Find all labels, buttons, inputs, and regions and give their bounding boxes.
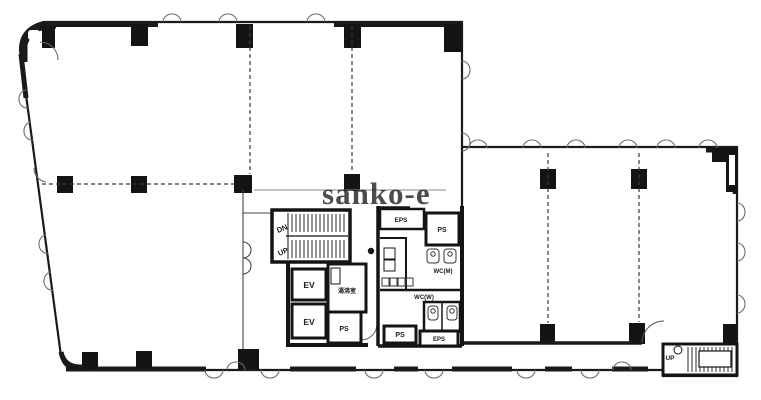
wc-women-label: WC(W) <box>414 295 434 301</box>
washbasin-4 <box>406 278 413 286</box>
kitchenette-room <box>328 264 366 312</box>
corridor-symbol <box>368 248 374 254</box>
urinal-1-bowl <box>431 252 435 256</box>
eps-north-label: EPS <box>394 217 408 224</box>
washbasin-1 <box>382 278 389 286</box>
urinal-2-bowl <box>448 252 452 256</box>
ps-south-label: PS <box>395 332 405 339</box>
watermark-text: sanko-e <box>322 176 431 211</box>
washbasin-2 <box>390 278 397 286</box>
exterior-stair-landing <box>699 351 731 367</box>
utility-fixture-2 <box>384 260 395 271</box>
ps-core-label: PS <box>339 326 349 333</box>
floor-plan-drawing: DN UP EV EV 湯沸室 PS EPS PS WC(M) WC(W) PS… <box>0 0 761 400</box>
eps-south-label: EPS <box>433 337 445 343</box>
exterior-stair-up-label: UP <box>665 355 675 362</box>
column-notches <box>28 30 735 185</box>
ps-north-label: PS <box>437 227 447 234</box>
elevator-2-label: EV <box>303 317 315 327</box>
floor-plan-canvas: DN UP EV EV 湯沸室 PS EPS PS WC(M) WC(W) PS… <box>0 0 761 400</box>
utility-fixture-1 <box>384 248 395 259</box>
kitchenette-label: 湯沸室 <box>338 287 356 295</box>
elevator-1-label: EV <box>303 280 315 290</box>
wc-men-label: WC(M) <box>434 269 453 275</box>
washbasin-3 <box>398 278 405 286</box>
core-east-cluster <box>378 206 462 346</box>
